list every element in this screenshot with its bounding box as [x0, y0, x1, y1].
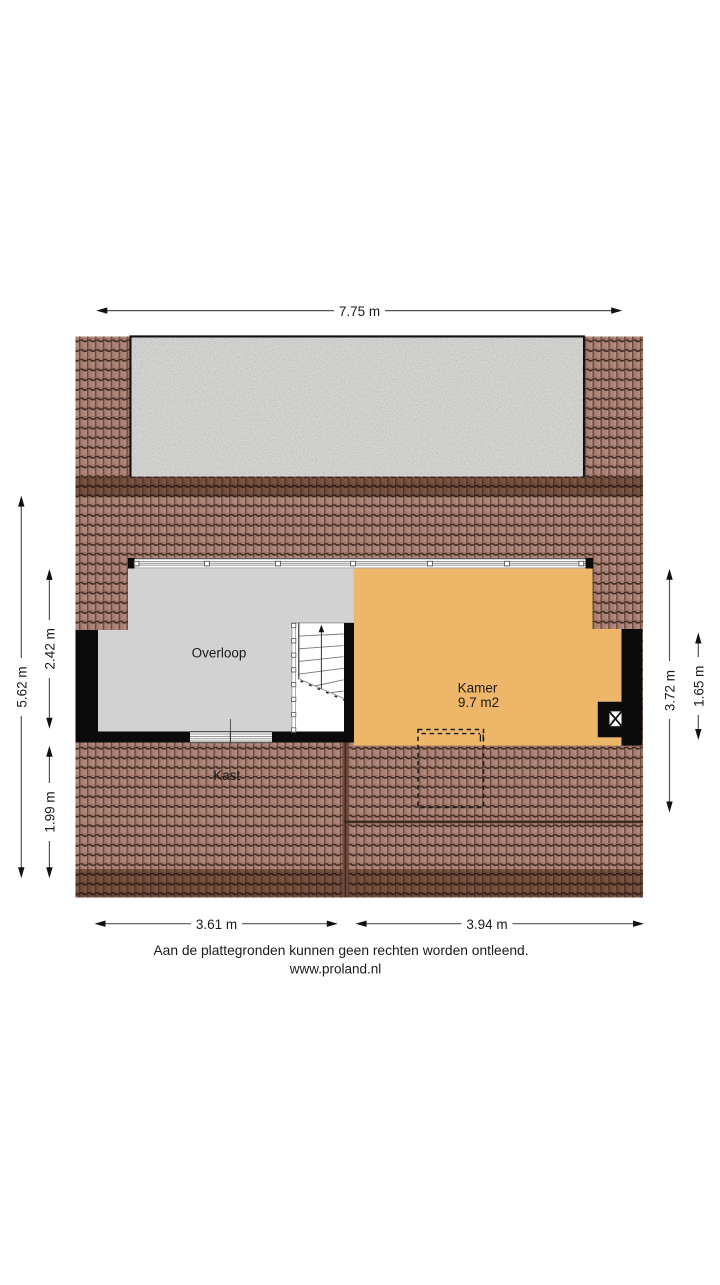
svg-text:3.72 m: 3.72 m	[663, 670, 678, 711]
svg-text:2.42 m: 2.42 m	[43, 628, 58, 669]
svg-text:1.65 m: 1.65 m	[692, 666, 707, 707]
svg-text:5.62 m: 5.62 m	[15, 666, 30, 707]
svg-text:Kamer: Kamer	[458, 680, 498, 695]
svg-text:www.proland.nl: www.proland.nl	[289, 961, 382, 976]
svg-text:1.99 m: 1.99 m	[43, 791, 58, 832]
svg-text:9.7 m2: 9.7 m2	[458, 695, 499, 710]
svg-text:3.94 m: 3.94 m	[466, 917, 507, 932]
svg-text:Overloop: Overloop	[192, 646, 247, 661]
svg-text:7.75 m: 7.75 m	[339, 304, 380, 319]
svg-text:Aan de plattegronden kunnen ge: Aan de plattegronden kunnen geen rechten…	[153, 943, 528, 958]
svg-text:Kast: Kast	[213, 768, 240, 783]
svg-text:3.61 m: 3.61 m	[196, 917, 237, 932]
